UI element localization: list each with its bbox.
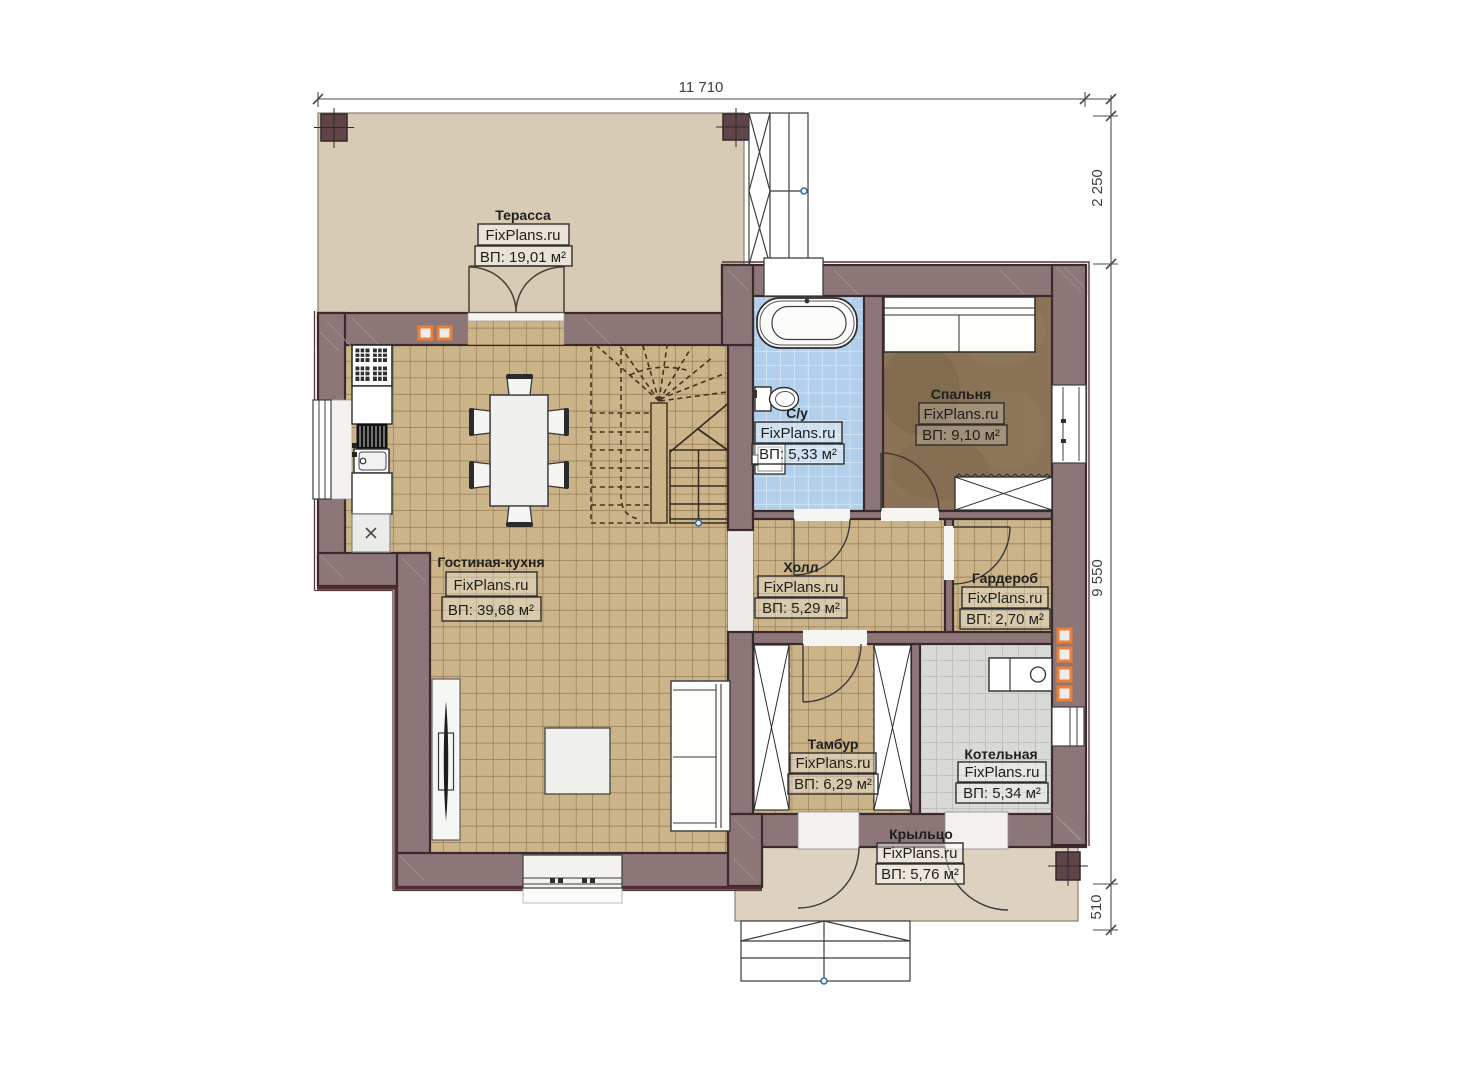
- svg-text:Гостиная-кухня: Гостиная-кухня: [437, 554, 544, 570]
- svg-text:С/у: С/у: [786, 405, 808, 421]
- svg-text:FixPlans.ru: FixPlans.ru: [882, 845, 957, 862]
- svg-text:FixPlans.ru: FixPlans.ru: [485, 227, 560, 244]
- svg-text:ВП: 5,33 м²: ВП: 5,33 м²: [759, 446, 837, 463]
- svg-text:Тамбур: Тамбур: [808, 736, 859, 752]
- svg-text:Гардероб: Гардероб: [972, 570, 1039, 586]
- svg-text:ВП: 5,29 м²: ВП: 5,29 м²: [762, 600, 840, 617]
- svg-text:510: 510: [1088, 894, 1105, 919]
- svg-text:ВП: 9,10 м²: ВП: 9,10 м²: [922, 427, 1000, 444]
- svg-text:ВП: 2,70 м²: ВП: 2,70 м²: [966, 611, 1044, 628]
- svg-text:Холл: Холл: [783, 559, 818, 575]
- svg-text:Терасса: Терасса: [495, 207, 551, 223]
- svg-text:11 710: 11 710: [679, 79, 724, 96]
- svg-text:2 250: 2 250: [1089, 169, 1106, 207]
- svg-text:ВП: 6,29 м²: ВП: 6,29 м²: [794, 776, 872, 793]
- svg-text:Спальня: Спальня: [931, 386, 991, 402]
- svg-text:FixPlans.ru: FixPlans.ru: [967, 590, 1042, 607]
- svg-text:Котельная: Котельная: [964, 746, 1037, 762]
- svg-text:Крыльцо: Крыльцо: [889, 826, 953, 842]
- svg-text:FixPlans.ru: FixPlans.ru: [964, 764, 1039, 781]
- svg-text:ВП: 5,76 м²: ВП: 5,76 м²: [881, 866, 959, 883]
- svg-text:9 550: 9 550: [1089, 559, 1106, 597]
- svg-text:ВП: 5,34 м²: ВП: 5,34 м²: [963, 785, 1041, 802]
- svg-text:ВП: 39,68 м²: ВП: 39,68 м²: [448, 602, 534, 619]
- svg-text:FixPlans.ru: FixPlans.ru: [760, 425, 835, 442]
- svg-text:FixPlans.ru: FixPlans.ru: [795, 755, 870, 772]
- svg-text:FixPlans.ru: FixPlans.ru: [453, 577, 528, 594]
- svg-text:FixPlans.ru: FixPlans.ru: [763, 579, 838, 596]
- svg-text:FixPlans.ru: FixPlans.ru: [923, 406, 998, 423]
- svg-text:ВП: 19,01 м²: ВП: 19,01 м²: [480, 249, 566, 266]
